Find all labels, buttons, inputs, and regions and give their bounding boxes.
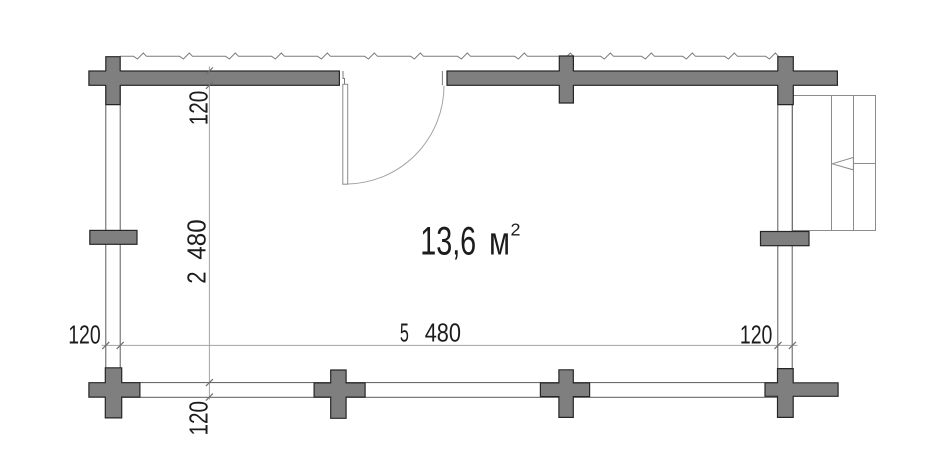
svg-text:480: 480 bbox=[425, 317, 461, 347]
svg-text:2: 2 bbox=[181, 272, 211, 284]
svg-text:120: 120 bbox=[184, 91, 214, 126]
svg-text:5: 5 bbox=[400, 317, 409, 347]
svg-text:120: 120 bbox=[68, 320, 101, 350]
svg-text:120: 120 bbox=[740, 320, 773, 350]
svg-text:480: 480 bbox=[181, 219, 211, 259]
svg-text:м: м bbox=[489, 220, 510, 264]
svg-text:13,6: 13,6 bbox=[420, 220, 476, 264]
svg-text:120: 120 bbox=[184, 401, 214, 436]
svg-text:2: 2 bbox=[511, 220, 521, 240]
